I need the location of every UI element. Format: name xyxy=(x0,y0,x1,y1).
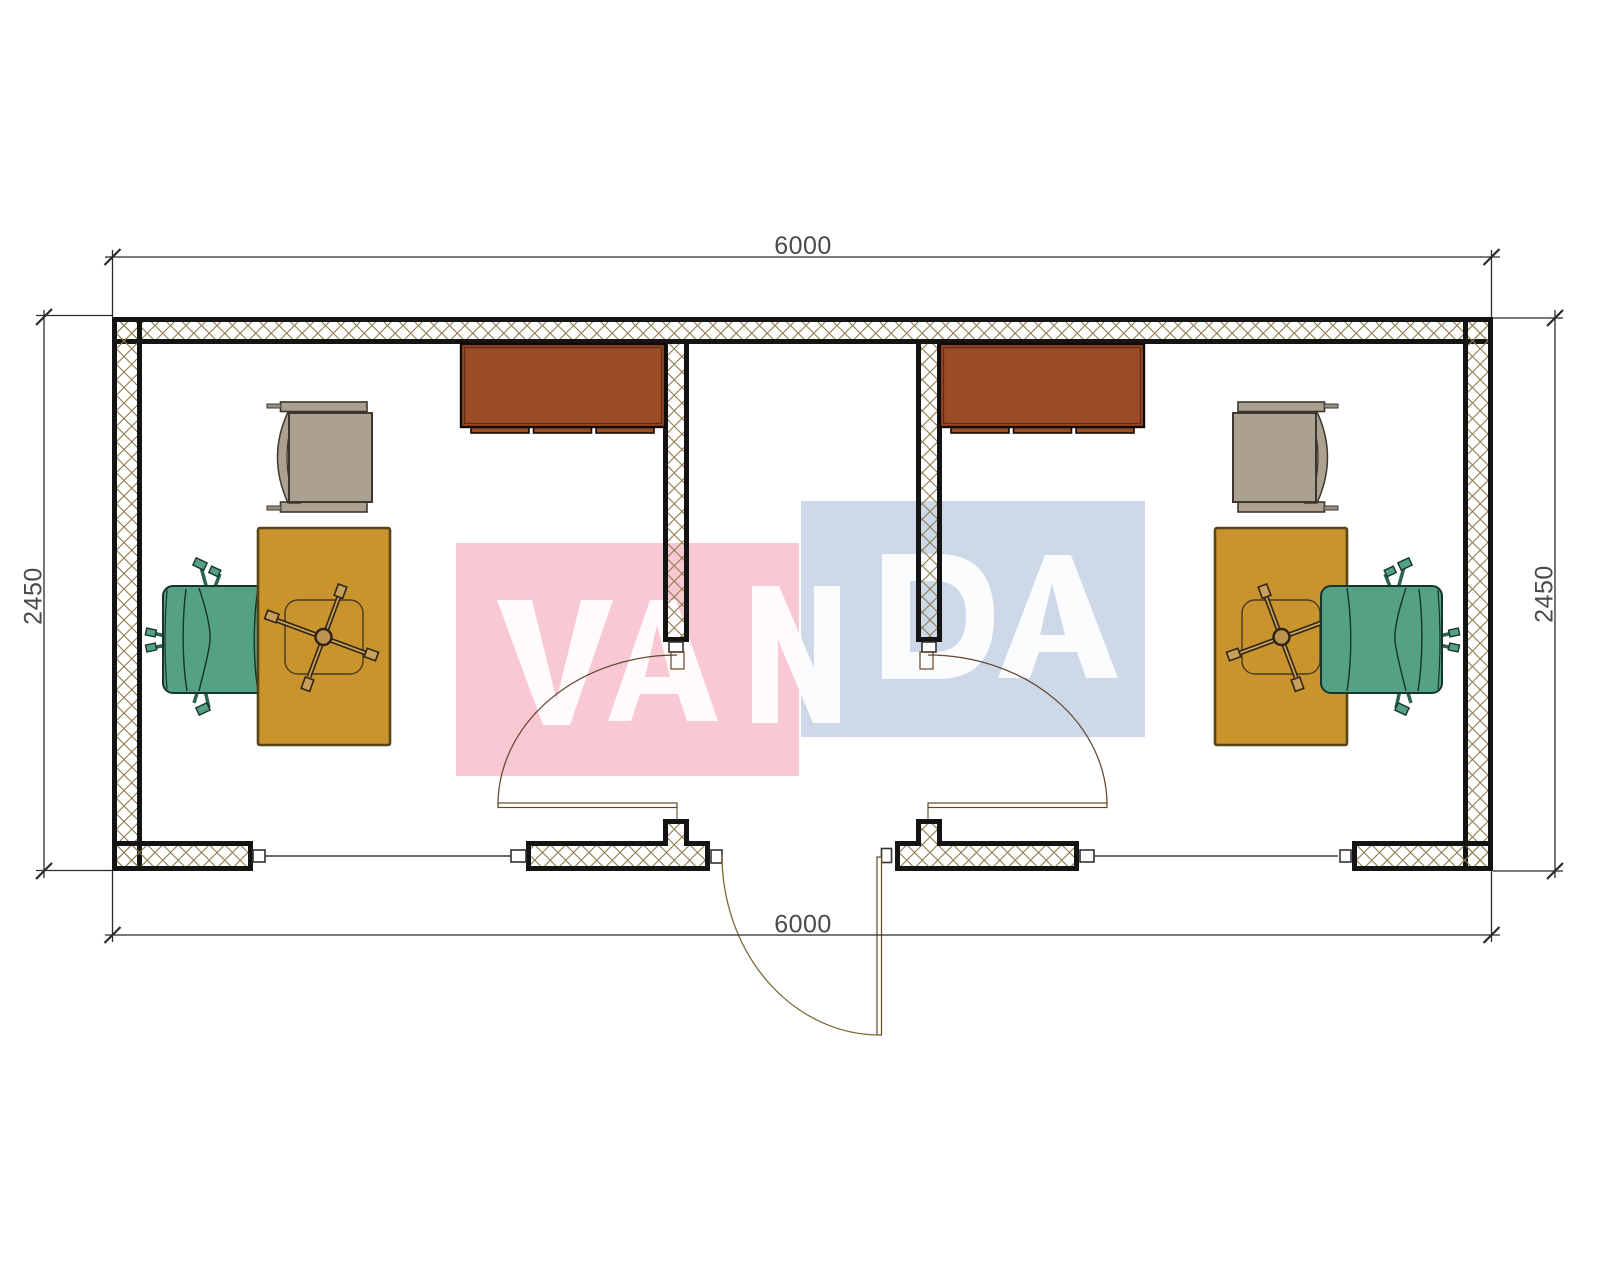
svg-text:2450: 2450 xyxy=(1531,565,1559,623)
svg-text:2450: 2450 xyxy=(20,567,48,625)
svg-text:6000: 6000 xyxy=(774,232,832,260)
svg-text:6000: 6000 xyxy=(774,911,832,939)
